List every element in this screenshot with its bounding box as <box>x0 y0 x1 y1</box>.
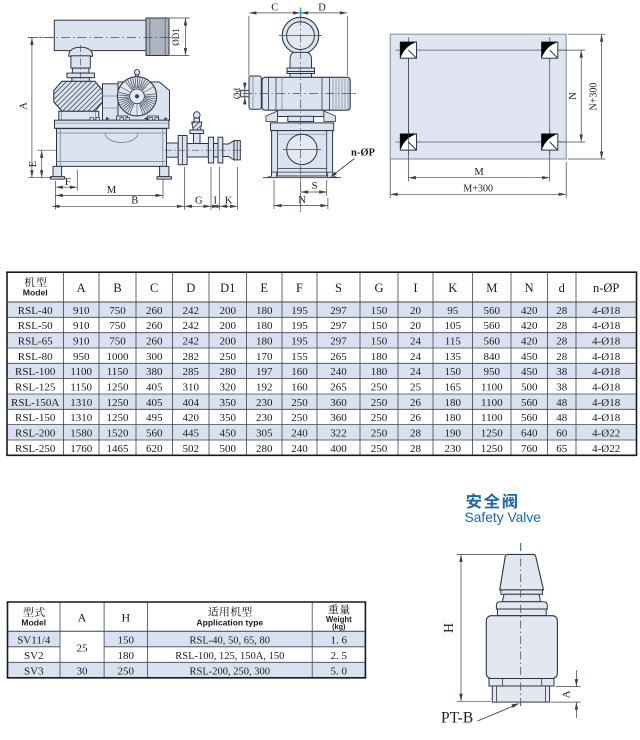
svg-text:250: 250 <box>220 351 237 363</box>
svg-text:28: 28 <box>410 427 422 439</box>
svg-text:150: 150 <box>371 305 388 317</box>
svg-text:Ød: Ød <box>232 88 242 99</box>
svg-text:N: N <box>568 92 579 100</box>
svg-text:450: 450 <box>521 351 538 363</box>
svg-text:297: 297 <box>330 336 347 348</box>
svg-text:4-Ø18: 4-Ø18 <box>592 320 621 332</box>
svg-text:1520: 1520 <box>107 427 130 439</box>
svg-text:A: A <box>78 611 87 625</box>
svg-text:B: B <box>131 196 138 207</box>
svg-text:24: 24 <box>410 336 422 348</box>
svg-text:SV3: SV3 <box>24 665 44 677</box>
svg-text:1310: 1310 <box>70 397 93 409</box>
svg-text:1580: 1580 <box>70 427 93 439</box>
svg-text:4-Ø18: 4-Ø18 <box>592 366 621 378</box>
svg-text:242: 242 <box>183 336 200 348</box>
svg-text:192: 192 <box>256 381 273 393</box>
svg-text:420: 420 <box>183 412 200 424</box>
svg-text:1000: 1000 <box>107 351 130 363</box>
svg-text:28: 28 <box>556 336 568 348</box>
svg-text:195: 195 <box>291 320 308 332</box>
svg-text:135: 135 <box>445 351 462 363</box>
svg-text:28: 28 <box>556 351 568 363</box>
svg-text:560: 560 <box>521 412 538 424</box>
svg-text:420: 420 <box>521 336 538 348</box>
svg-text:150: 150 <box>445 366 462 378</box>
svg-text:A: A <box>77 281 86 295</box>
svg-text:RSL-250: RSL-250 <box>15 443 56 455</box>
svg-text:20: 20 <box>410 320 422 332</box>
svg-text:H: H <box>121 611 130 625</box>
svg-text:48: 48 <box>556 397 568 409</box>
svg-text:A: A <box>19 102 30 110</box>
svg-text:I: I <box>413 281 417 295</box>
svg-text:C: C <box>271 2 278 13</box>
svg-text:350: 350 <box>220 397 237 409</box>
svg-text:350: 350 <box>220 412 237 424</box>
svg-text:Safety Valve: Safety Valve <box>465 510 542 525</box>
svg-text:260: 260 <box>146 320 163 332</box>
svg-text:4-Ø18: 4-Ø18 <box>592 412 621 424</box>
svg-text:560: 560 <box>484 320 501 332</box>
svg-text:N: N <box>525 281 534 295</box>
svg-text:300: 300 <box>146 351 163 363</box>
svg-text:950: 950 <box>484 366 501 378</box>
svg-text:4-Ø18: 4-Ø18 <box>592 305 621 317</box>
svg-text:445: 445 <box>183 427 200 439</box>
svg-text:A: A <box>561 690 573 698</box>
svg-text:180: 180 <box>256 305 273 317</box>
svg-text:360: 360 <box>330 397 347 409</box>
svg-text:285: 285 <box>183 366 200 378</box>
svg-text:260: 260 <box>146 305 163 317</box>
svg-text:322: 322 <box>330 427 347 439</box>
svg-text:840: 840 <box>484 351 501 363</box>
svg-text:200: 200 <box>220 320 237 332</box>
svg-text:420: 420 <box>521 320 538 332</box>
svg-text:RSL-65: RSL-65 <box>18 336 53 348</box>
svg-text:1150: 1150 <box>70 381 92 393</box>
svg-text:502: 502 <box>183 443 200 455</box>
svg-text:C: C <box>150 281 158 295</box>
svg-text:24: 24 <box>410 351 422 363</box>
svg-text:560: 560 <box>521 397 538 409</box>
svg-text:197: 197 <box>256 366 273 378</box>
svg-text:RSL-100, 125, 150A, 150: RSL-100, 125, 150A, 150 <box>175 651 284 662</box>
svg-text:RSL-150A: RSL-150A <box>11 397 59 409</box>
svg-text:B: B <box>113 281 121 295</box>
svg-text:180: 180 <box>445 412 462 424</box>
svg-text:E: E <box>260 281 268 295</box>
svg-text:200: 200 <box>220 336 237 348</box>
svg-text:Application type: Application type <box>196 617 263 627</box>
svg-text:D: D <box>186 281 195 295</box>
svg-text:500: 500 <box>220 443 237 455</box>
svg-text:282: 282 <box>183 351 200 363</box>
svg-text:230: 230 <box>256 397 273 409</box>
svg-text:640: 640 <box>521 427 538 439</box>
svg-text:1250: 1250 <box>107 397 130 409</box>
svg-text:1100: 1100 <box>481 381 503 393</box>
svg-text:Model: Model <box>21 617 46 627</box>
svg-text:240: 240 <box>330 366 347 378</box>
svg-text:n-ØP: n-ØP <box>351 148 376 159</box>
svg-text:1465: 1465 <box>107 443 130 455</box>
svg-text:265: 265 <box>330 381 347 393</box>
svg-text:1100: 1100 <box>481 412 503 424</box>
svg-text:265: 265 <box>330 351 347 363</box>
svg-text:180: 180 <box>118 650 135 662</box>
svg-text:30: 30 <box>77 665 89 677</box>
svg-text:180: 180 <box>256 320 273 332</box>
svg-text:250: 250 <box>371 397 388 409</box>
svg-text:240: 240 <box>291 427 308 439</box>
svg-text:M: M <box>486 281 497 295</box>
svg-text:I: I <box>214 195 218 206</box>
svg-text:190: 190 <box>445 427 462 439</box>
svg-text:28: 28 <box>410 443 422 455</box>
svg-text:750: 750 <box>109 305 126 317</box>
svg-text:1100: 1100 <box>70 366 92 378</box>
svg-text:250: 250 <box>291 397 308 409</box>
svg-text:S: S <box>312 181 318 192</box>
svg-text:RSL-200, 250, 300: RSL-200, 250, 300 <box>190 666 271 677</box>
svg-text:560: 560 <box>484 305 501 317</box>
svg-text:ØD1: ØD1 <box>171 28 181 46</box>
svg-text:RSL-50: RSL-50 <box>18 320 53 332</box>
svg-text:D: D <box>318 2 326 13</box>
svg-text:SV2: SV2 <box>24 650 44 662</box>
svg-text:360: 360 <box>330 412 347 424</box>
svg-text:165: 165 <box>445 381 462 393</box>
svg-text:910: 910 <box>73 320 90 332</box>
svg-text:RSL-80: RSL-80 <box>18 351 53 363</box>
svg-text:450: 450 <box>521 366 538 378</box>
svg-text:5. 0: 5. 0 <box>331 665 348 677</box>
svg-text:560: 560 <box>484 336 501 348</box>
svg-text:F: F <box>65 177 71 188</box>
svg-text:(kg): (kg) <box>332 622 346 631</box>
svg-text:500: 500 <box>521 381 538 393</box>
svg-text:38: 38 <box>556 366 568 378</box>
svg-text:620: 620 <box>146 443 163 455</box>
svg-text:K: K <box>225 195 233 206</box>
svg-text:297: 297 <box>330 320 347 332</box>
svg-text:38: 38 <box>556 381 568 393</box>
svg-text:1250: 1250 <box>107 412 130 424</box>
svg-text:4-Ø18: 4-Ø18 <box>592 381 621 393</box>
svg-text:1250: 1250 <box>481 443 504 455</box>
svg-text:115: 115 <box>445 336 462 348</box>
svg-text:60: 60 <box>556 427 568 439</box>
svg-text:297: 297 <box>330 305 347 317</box>
svg-text:230: 230 <box>256 412 273 424</box>
svg-text:305: 305 <box>256 427 273 439</box>
svg-text:1310: 1310 <box>70 412 93 424</box>
svg-text:RSL-200: RSL-200 <box>15 427 56 439</box>
svg-text:450: 450 <box>220 427 237 439</box>
svg-text:24: 24 <box>410 366 422 378</box>
svg-text:RSL-125: RSL-125 <box>15 381 56 393</box>
svg-text:48: 48 <box>556 412 568 424</box>
svg-text:155: 155 <box>291 351 308 363</box>
svg-text:250: 250 <box>291 412 308 424</box>
svg-text:560: 560 <box>146 427 163 439</box>
svg-text:910: 910 <box>73 305 90 317</box>
svg-text:250: 250 <box>371 381 388 393</box>
svg-text:180: 180 <box>371 351 388 363</box>
svg-text:H: H <box>441 623 456 633</box>
svg-text:250: 250 <box>118 665 135 677</box>
svg-text:195: 195 <box>291 336 308 348</box>
svg-text:n-ØP: n-ØP <box>593 281 619 295</box>
svg-text:180: 180 <box>445 397 462 409</box>
svg-text:200: 200 <box>220 305 237 317</box>
svg-text:M+300: M+300 <box>463 184 493 195</box>
svg-text:230: 230 <box>445 443 462 455</box>
svg-text:M: M <box>474 167 484 178</box>
svg-text:E: E <box>28 161 39 167</box>
svg-text:4-Ø18: 4-Ø18 <box>592 351 621 363</box>
svg-text:760: 760 <box>521 443 538 455</box>
svg-text:910: 910 <box>73 336 90 348</box>
svg-text:G: G <box>195 195 203 206</box>
svg-text:PT-B: PT-B <box>441 710 473 727</box>
svg-text:195: 195 <box>291 305 308 317</box>
svg-text:240: 240 <box>291 443 308 455</box>
svg-text:26: 26 <box>410 397 422 409</box>
svg-text:N: N <box>298 195 306 206</box>
svg-text:280: 280 <box>256 443 273 455</box>
svg-text:242: 242 <box>183 320 200 332</box>
svg-text:380: 380 <box>146 366 163 378</box>
svg-text:RSL-100: RSL-100 <box>15 366 56 378</box>
svg-text:320: 320 <box>220 381 237 393</box>
svg-text:M: M <box>107 185 117 196</box>
svg-text:150: 150 <box>371 336 388 348</box>
svg-text:4-Ø18: 4-Ø18 <box>592 336 621 348</box>
svg-text:Model: Model <box>23 287 48 297</box>
svg-text:95: 95 <box>447 305 459 317</box>
svg-text:250: 250 <box>371 427 388 439</box>
svg-text:25: 25 <box>77 643 89 655</box>
svg-text:K: K <box>448 281 457 295</box>
svg-text:250: 250 <box>371 412 388 424</box>
svg-text:400: 400 <box>330 443 347 455</box>
svg-text:20: 20 <box>410 305 422 317</box>
svg-text:405: 405 <box>146 397 163 409</box>
svg-text:150: 150 <box>371 320 388 332</box>
svg-text:1250: 1250 <box>107 381 130 393</box>
svg-text:180: 180 <box>371 366 388 378</box>
svg-text:1. 6: 1. 6 <box>331 634 348 646</box>
svg-text:242: 242 <box>183 305 200 317</box>
svg-text:d: d <box>559 281 566 295</box>
svg-text:250: 250 <box>371 443 388 455</box>
svg-text:2. 5: 2. 5 <box>331 650 348 662</box>
svg-text:405: 405 <box>146 381 163 393</box>
svg-text:RSL-150: RSL-150 <box>15 412 56 424</box>
svg-text:750: 750 <box>109 320 126 332</box>
svg-text:280: 280 <box>220 366 237 378</box>
svg-text:105: 105 <box>445 320 462 332</box>
svg-text:404: 404 <box>183 397 200 409</box>
svg-text:1150: 1150 <box>107 366 129 378</box>
svg-text:4-Ø22: 4-Ø22 <box>592 427 620 439</box>
svg-text:G: G <box>374 281 383 295</box>
svg-text:28: 28 <box>556 320 568 332</box>
svg-text:950: 950 <box>73 351 90 363</box>
svg-text:420: 420 <box>521 305 538 317</box>
svg-text:260: 260 <box>146 336 163 348</box>
svg-text:RSL-40: RSL-40 <box>18 305 53 317</box>
svg-text:170: 170 <box>256 351 273 363</box>
svg-text:65: 65 <box>556 443 568 455</box>
svg-text:28: 28 <box>556 305 568 317</box>
svg-text:S: S <box>335 281 342 295</box>
svg-text:25: 25 <box>410 381 422 393</box>
svg-text:160: 160 <box>291 381 308 393</box>
svg-text:160: 160 <box>291 366 308 378</box>
svg-text:1100: 1100 <box>481 397 503 409</box>
svg-text:1250: 1250 <box>481 427 504 439</box>
svg-text:F: F <box>296 281 303 295</box>
svg-text:RSL-40, 50, 65, 80: RSL-40, 50, 65, 80 <box>190 635 271 646</box>
svg-text:D1: D1 <box>220 281 235 295</box>
svg-text:180: 180 <box>256 336 273 348</box>
svg-text:SV11/4: SV11/4 <box>17 634 51 646</box>
svg-text:4-Ø22: 4-Ø22 <box>592 443 620 455</box>
svg-text:750: 750 <box>109 336 126 348</box>
svg-text:495: 495 <box>146 412 163 424</box>
svg-text:N+300: N+300 <box>588 83 599 111</box>
svg-text:310: 310 <box>183 381 200 393</box>
svg-text:26: 26 <box>410 412 422 424</box>
svg-text:1760: 1760 <box>70 443 93 455</box>
svg-text:4-Ø18: 4-Ø18 <box>592 397 621 409</box>
svg-text:150: 150 <box>118 634 135 646</box>
